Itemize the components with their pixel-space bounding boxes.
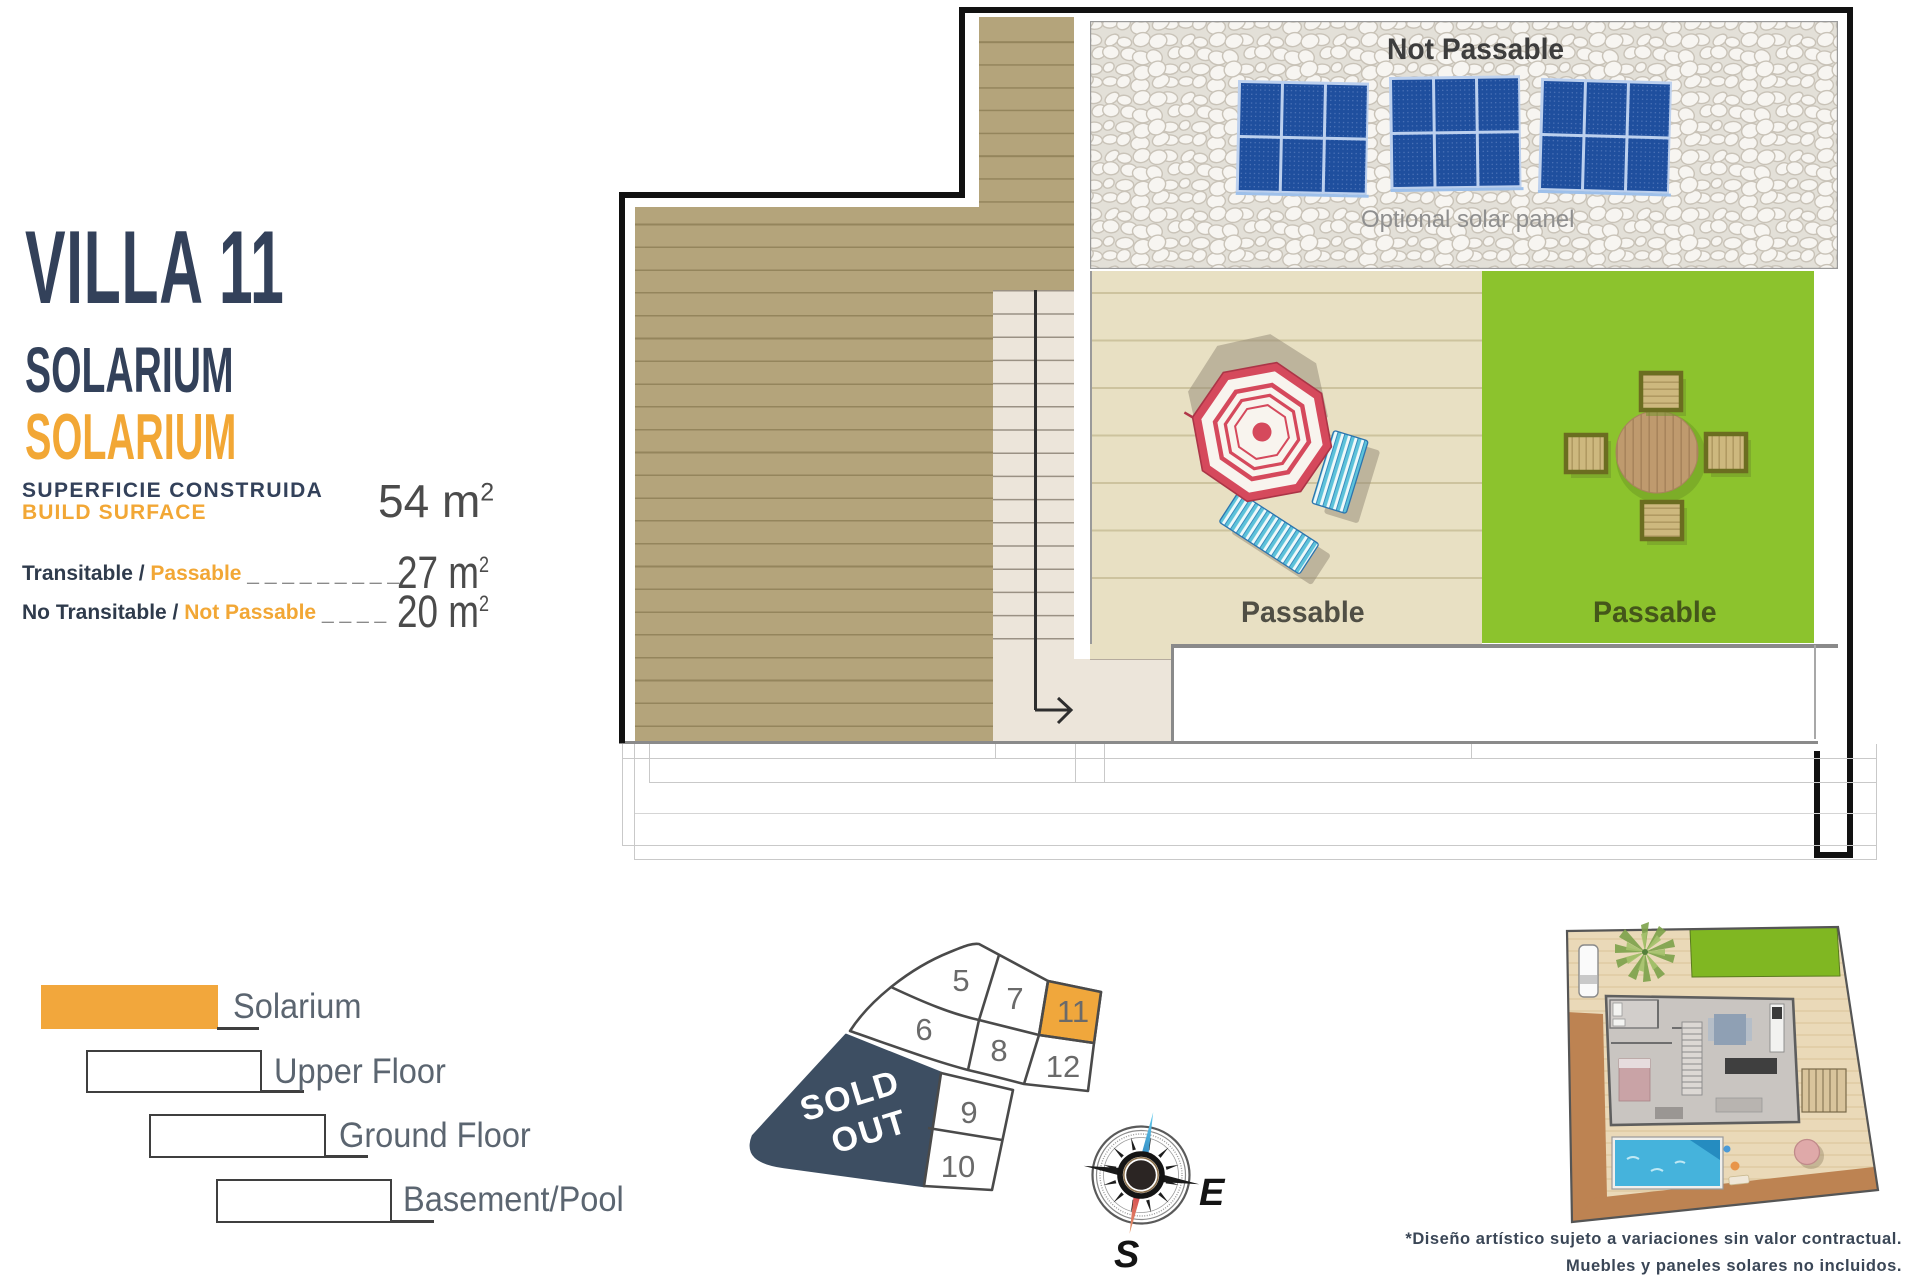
svg-text:6: 6 bbox=[915, 1012, 932, 1047]
svg-text:7: 7 bbox=[1006, 981, 1023, 1016]
svg-text:12: 12 bbox=[1046, 1049, 1080, 1084]
svg-text:8: 8 bbox=[990, 1033, 1007, 1068]
svg-text:9: 9 bbox=[960, 1095, 977, 1130]
svg-text:11: 11 bbox=[1057, 994, 1089, 1029]
svg-text:10: 10 bbox=[941, 1149, 975, 1184]
svg-text:5: 5 bbox=[952, 963, 969, 998]
